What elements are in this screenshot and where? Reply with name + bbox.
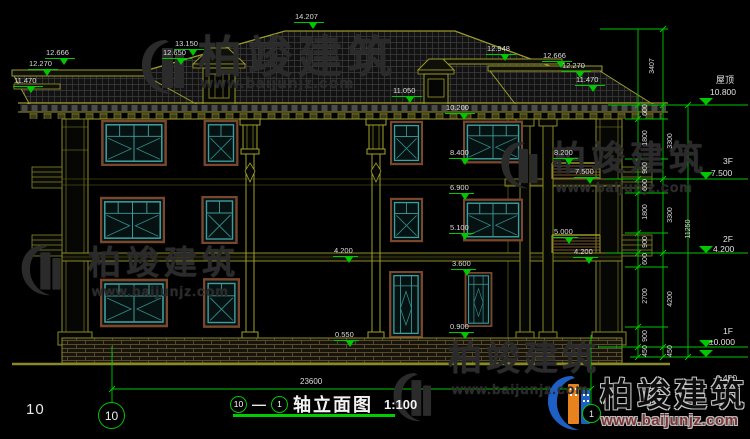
level-name: 3F: [723, 157, 733, 166]
watermark-logo-icon: [498, 136, 546, 196]
level-name: 屋顶: [716, 76, 734, 85]
watermark-url: www.baijunjz.com: [201, 76, 354, 91]
roof-mark: 12.270: [562, 62, 585, 70]
dim-segment: 450: [642, 340, 650, 362]
watermark-brand: 柏竣建筑: [198, 36, 398, 80]
title-dash: —: [252, 396, 266, 412]
title-underline: [233, 414, 395, 417]
elev-mark: 5.000: [554, 228, 573, 236]
title-axis-end: 1: [277, 399, 282, 409]
level-value: 10.800: [710, 88, 736, 97]
dim-segment: 3300: [667, 130, 675, 152]
sheet-number: 10: [26, 401, 45, 418]
level-name: 2F: [723, 235, 733, 244]
dim-segment: 450: [667, 340, 675, 362]
dormer-mark: 13.150: [175, 40, 198, 48]
title-scale: 1:100: [384, 397, 417, 412]
elev-mark: 7.500: [575, 168, 594, 176]
dim-segment: 600: [642, 99, 650, 121]
watermark-url: www.baijunjz.com: [556, 180, 693, 194]
watermark-url: www.baijunjz.com: [452, 382, 589, 396]
eave-mark: 11.050: [393, 87, 415, 95]
elev-mark: 8.400: [450, 149, 469, 157]
axis-bubble-1-label: 1: [589, 409, 594, 419]
level-name: 1F: [723, 327, 733, 336]
axis-bubble-10: 10: [98, 402, 125, 429]
elev-mark: 6.900: [450, 184, 469, 192]
brand-logo-url: www.baijunjz.com: [601, 413, 738, 428]
ridge-mark: 14.207: [295, 13, 318, 21]
elev-mark: 0.550: [335, 331, 354, 339]
roof-mark: 12.270: [29, 60, 52, 68]
dim-total: 11250: [685, 218, 693, 240]
overall-width-dim: 23600: [300, 377, 322, 386]
eave-mark: 10.200: [446, 104, 469, 112]
dim-segment: 4200: [667, 288, 675, 310]
title-axis-start-bubble: 10: [230, 396, 247, 413]
roof-mark: 12.666: [543, 52, 566, 60]
level-value: 7.500: [711, 169, 732, 178]
dim-segment: 3407: [649, 55, 657, 77]
watermark-logo-icon: [18, 240, 70, 302]
elev-mark: 0.900: [450, 323, 469, 331]
roof-mark: 11.470: [14, 77, 36, 85]
roof-mark: 11.470: [576, 76, 598, 84]
elev-mark: 4.200: [574, 248, 593, 256]
dim-segment: 1800: [642, 127, 650, 149]
cad-elevation-sheet: 柏竣建筑 www.baijunjz.com 柏竣建筑 www.baijunjz.…: [0, 0, 750, 439]
watermark-brand: 柏竣建筑: [448, 342, 600, 376]
title-axis-start: 10: [234, 399, 243, 409]
title-axis-end-bubble: 1: [271, 396, 288, 413]
level-value: ±0.000: [709, 338, 735, 347]
dim-segment: 2700: [642, 285, 650, 307]
dim-segment: 1800: [642, 201, 650, 223]
dim-segment: 600: [642, 174, 650, 196]
axis-bubble-1: 1: [582, 404, 601, 423]
elev-mark: 8.200: [554, 149, 573, 157]
axis-bubble-10-label: 10: [105, 409, 118, 423]
brand-logo-text: 柏竣建筑: [600, 378, 748, 411]
dormer-mark: 12.650: [163, 49, 186, 57]
roof-mark: 12.666: [46, 49, 69, 57]
elev-mark: 5.100: [450, 224, 469, 232]
dim-segment: 600: [642, 248, 650, 270]
elev-mark: 4.200: [334, 247, 353, 255]
elev-mark: 3.600: [452, 260, 471, 268]
watermark-url: www.baijunjz.com: [92, 284, 229, 298]
dim-segment: 3300: [667, 204, 675, 226]
level-value: 4.200: [713, 245, 734, 254]
watermark-brand: 柏竣建筑: [88, 246, 240, 279]
roof-mark: 12.948: [487, 45, 510, 53]
